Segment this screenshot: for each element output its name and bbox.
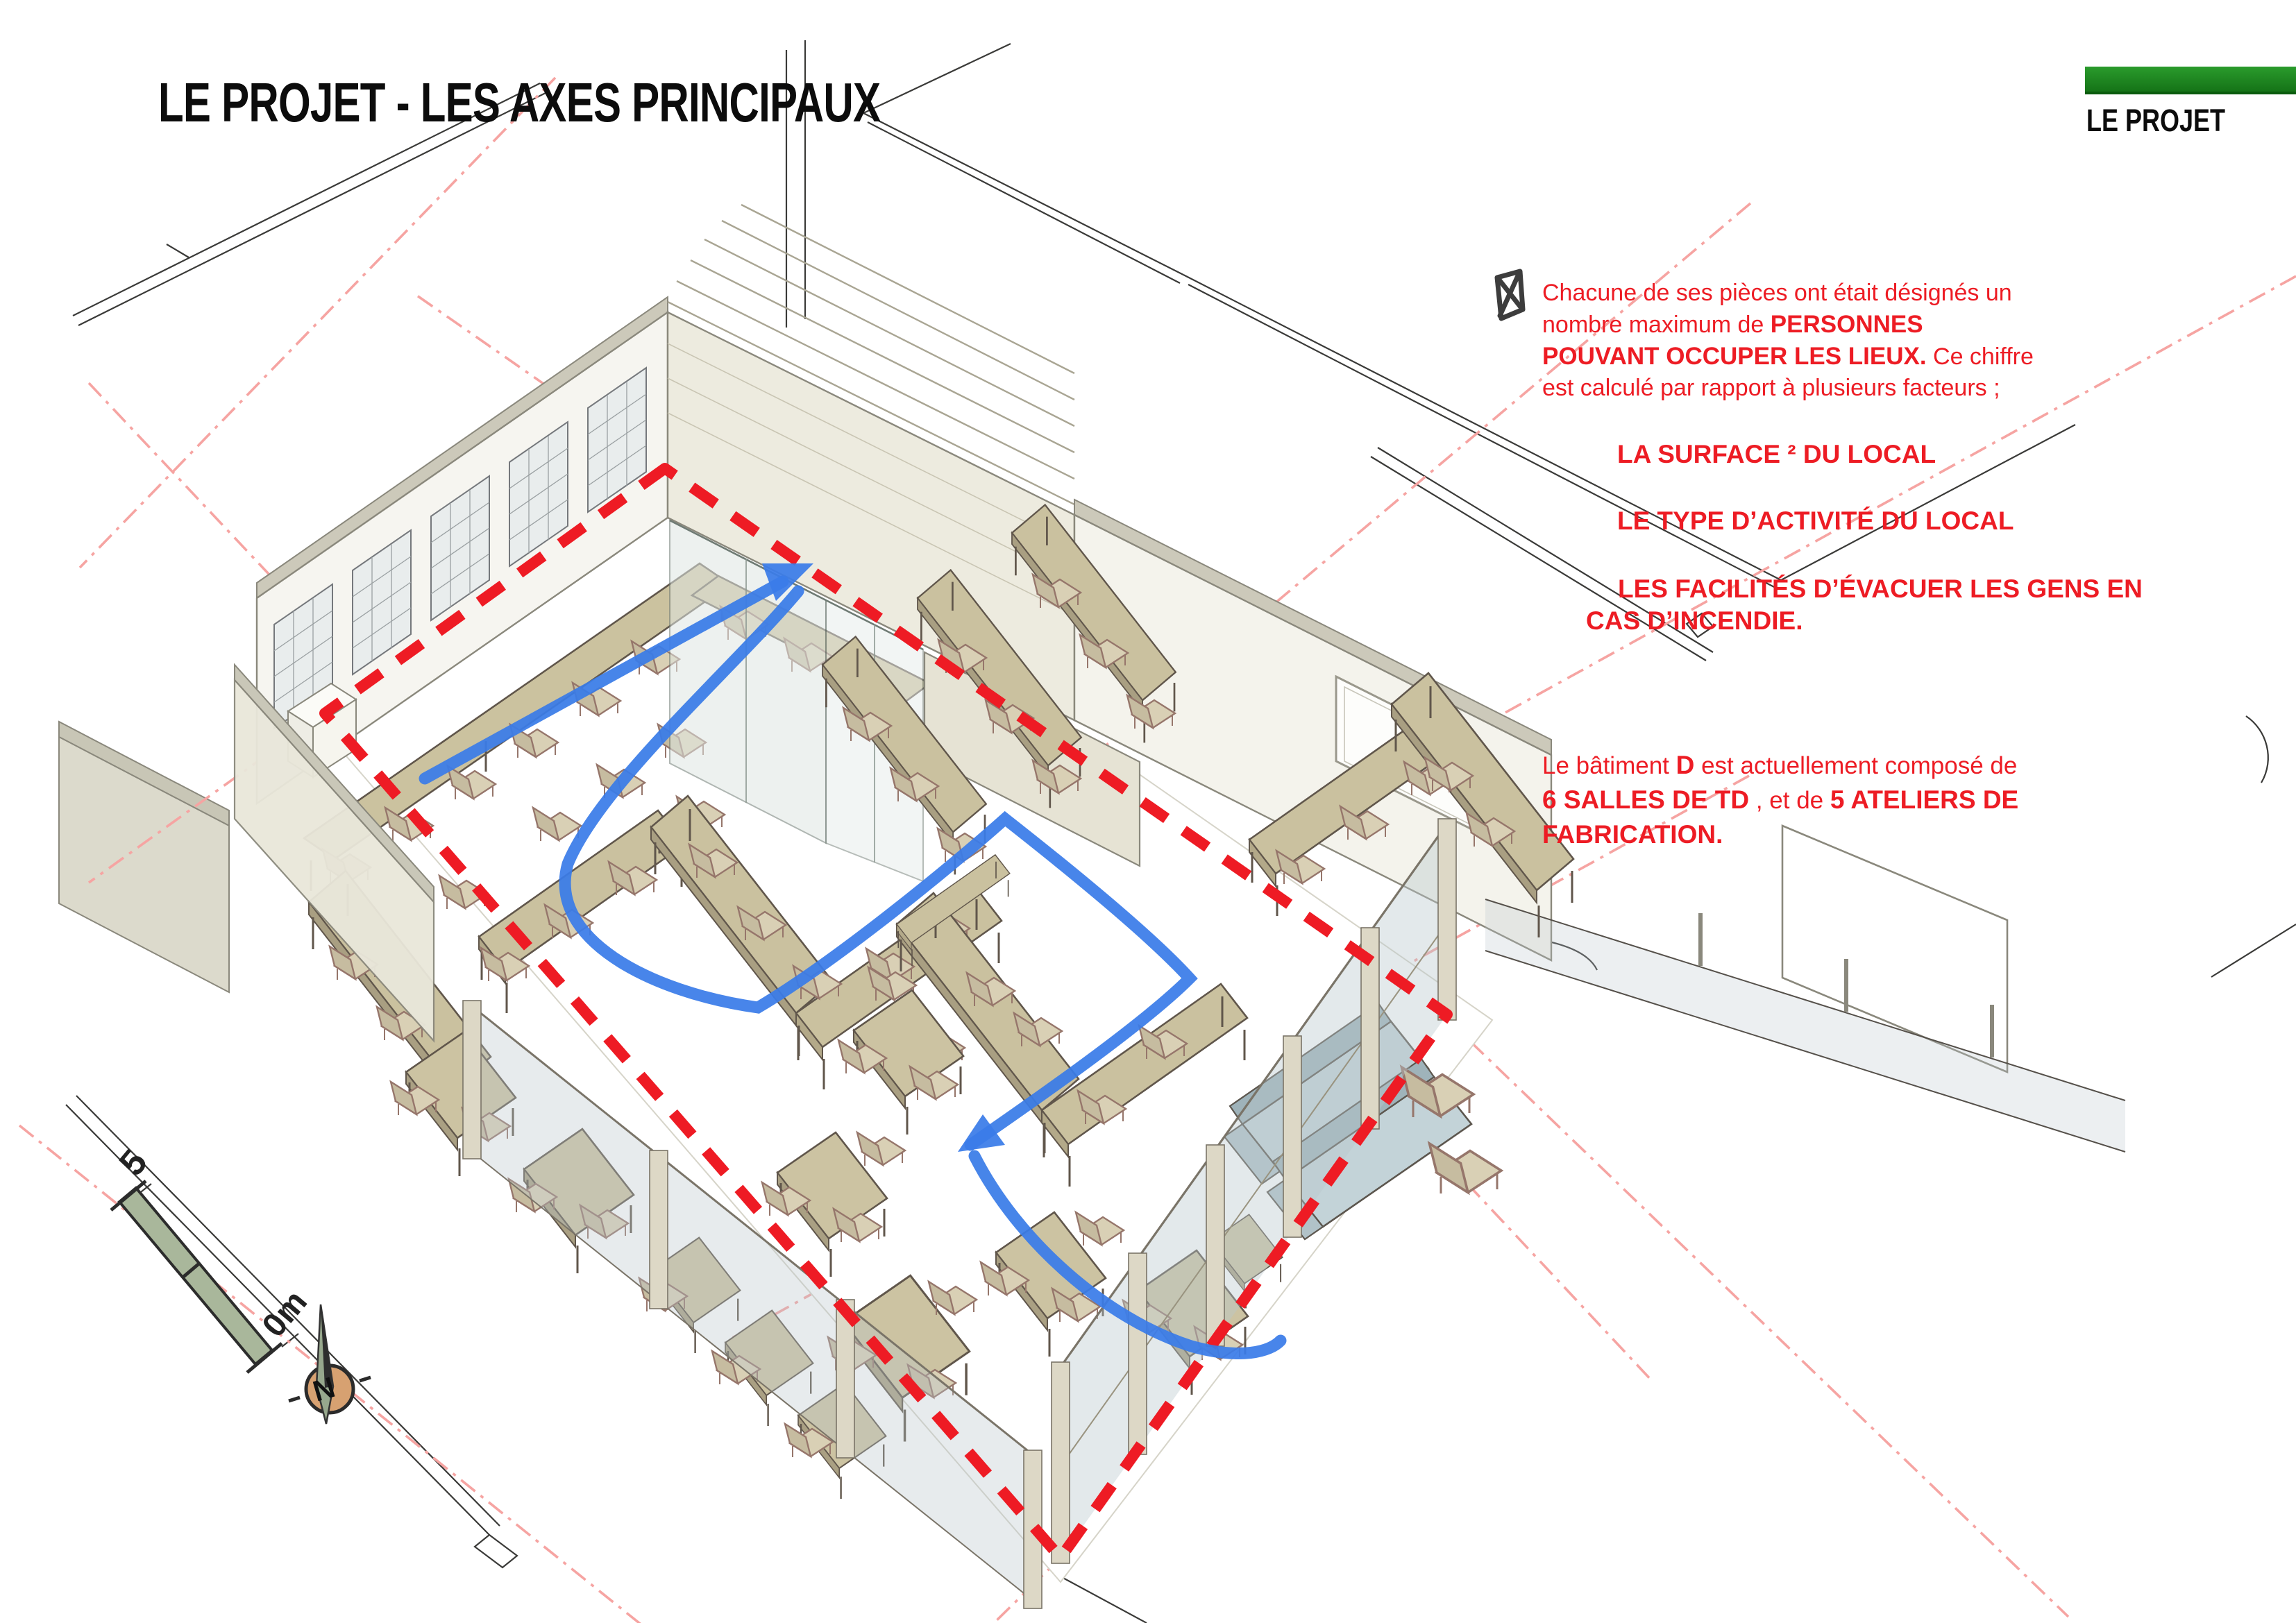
neighbour-glazing xyxy=(1485,826,2125,1152)
scale-bar: 5 0m xyxy=(111,1142,314,1373)
scale-top-label: 5 xyxy=(112,1142,155,1183)
scale-bottom-label: 0m xyxy=(255,1284,314,1344)
section-label: LE PROJET xyxy=(2086,103,2225,139)
note-paragraph-building: Le bâtiment D est actuellement composé d… xyxy=(1542,748,2209,852)
page-title: LE PROJET - LES AXES PRINCIPAUX xyxy=(158,71,880,135)
note-paragraph-occupancy: Chacune de ses pièces ont était désignés… xyxy=(1542,278,2209,404)
factor-evacuation: LES FACILITÉS D’ÉVACUER LES GENS EN CAS … xyxy=(1586,573,2169,637)
context-wall-block xyxy=(59,722,229,992)
slide-page: { "header": { "title": "LE PROJET - LES … xyxy=(0,0,2296,1623)
factor-activity: LE TYPE D’ACTIVITÉ DU LOCAL xyxy=(1617,505,2209,537)
annotation-notes: Chacune de ses pièces ont était désignés… xyxy=(1542,278,2209,852)
crossed-square-icon xyxy=(1491,268,1527,326)
green-accent-bar xyxy=(2085,67,2296,94)
factor-surface: LA SURFACE ² DU LOCAL xyxy=(1617,439,2209,470)
